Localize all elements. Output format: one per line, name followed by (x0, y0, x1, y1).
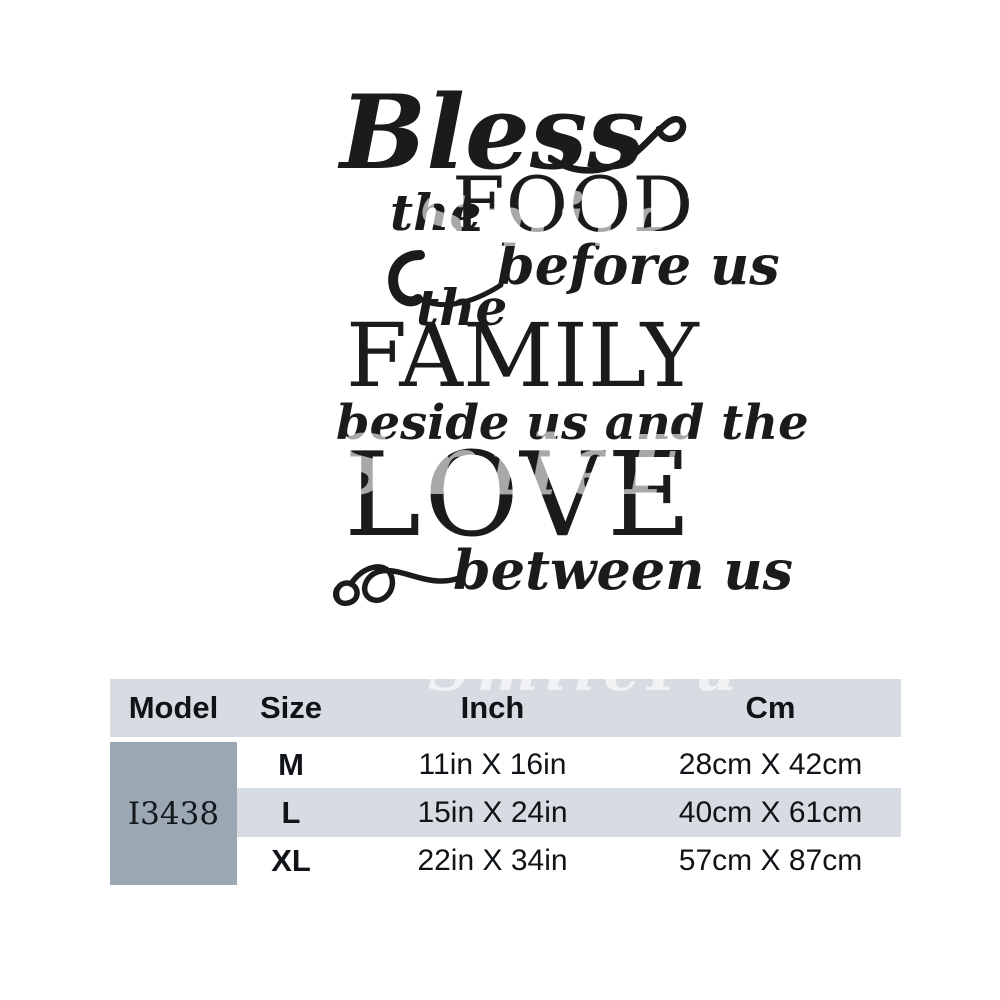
row-m-cm: 28cm X 42cm (640, 748, 901, 782)
size-table-header-row: Model Size Inch Cm (110, 679, 901, 737)
row-l-cm: 40cm X 61cm (640, 796, 901, 830)
size-table: Model Size Inch Cm M 11in X 16in 28cm X … (110, 679, 901, 885)
decal-word-family: FAMILY (346, 312, 699, 400)
header-inch: Inch (345, 690, 640, 726)
decal-word-love: LOVE (344, 438, 695, 554)
row-xl-size: XL (237, 843, 345, 879)
row-xl-inch: 22in X 34in (345, 844, 640, 878)
header-size: Size (237, 690, 345, 726)
decal-word-between-us: between us (453, 543, 793, 597)
row-l-size: L (237, 795, 345, 831)
row-m-size: M (237, 747, 345, 783)
header-cm: Cm (640, 690, 901, 726)
row-m-inch: 11in X 16in (345, 748, 640, 782)
row-l-inch: 15in X 24in (345, 796, 640, 830)
decal-word-before-us: before us (497, 238, 780, 292)
loop-flourish-icon (332, 554, 464, 618)
header-model: Model (110, 690, 237, 726)
row-xl-cm: 57cm X 87cm (640, 844, 901, 878)
decal-word-food: FOOD (452, 167, 694, 243)
model-number-cell: I3438 (110, 742, 237, 885)
